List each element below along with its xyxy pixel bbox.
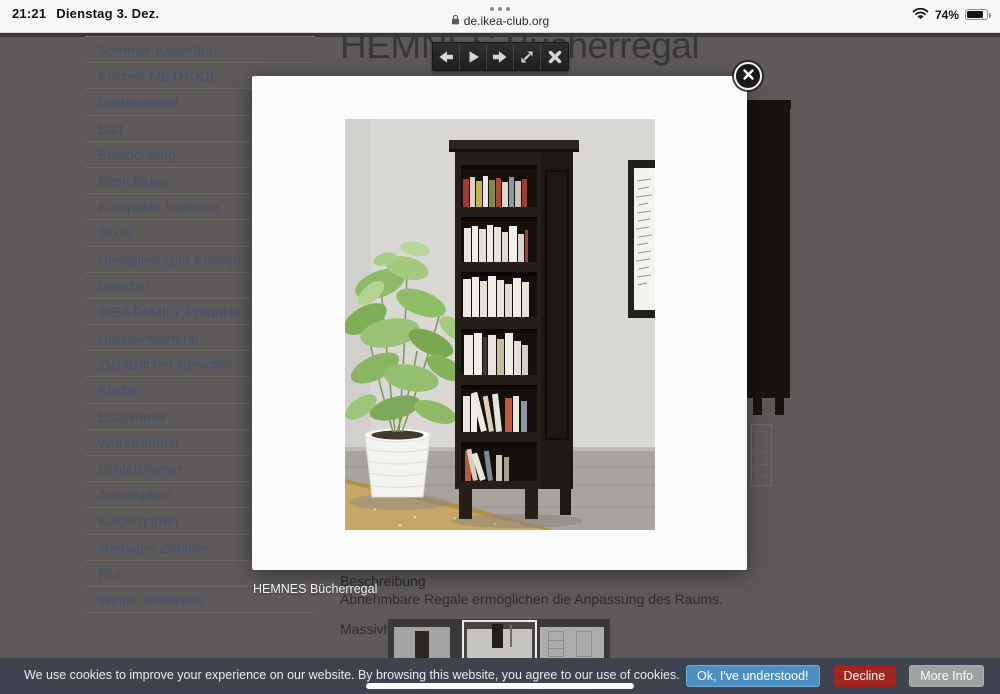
- close-x-icon: [742, 68, 755, 84]
- close-icon: [545, 47, 565, 67]
- cookie-more-info-button[interactable]: More Info: [909, 665, 984, 687]
- thumbnail-strip: [388, 619, 610, 661]
- background-product-leg: [753, 398, 762, 415]
- lock-icon: [451, 14, 460, 28]
- home-indicator[interactable]: [366, 683, 634, 689]
- wifi-icon: [912, 7, 929, 22]
- expand-icon: [517, 47, 537, 67]
- thumbnail-3[interactable]: [540, 627, 604, 661]
- product-photo-hemnes-bookshelf: [345, 119, 655, 530]
- thumbnail-2-selected[interactable]: [462, 620, 537, 661]
- next-arrow-icon: [490, 47, 510, 67]
- previous-arrow-icon: [436, 47, 456, 67]
- next-image-button[interactable]: [487, 43, 514, 70]
- tab-dots-icon[interactable]: [0, 7, 1000, 11]
- previous-image-button[interactable]: [433, 43, 460, 70]
- url-text: de.ikea-club.org: [464, 14, 549, 28]
- lightbox-caption: HEMNES Bücherregal: [253, 582, 377, 596]
- status-bar: 21:21Dienstag 3. Dez. de.ikea-club.org 7: [0, 0, 1000, 33]
- play-slideshow-button[interactable]: [460, 43, 487, 70]
- lightbox-modal: [252, 76, 747, 570]
- description-text: Abnehmbare Regale ermöglichen die Anpass…: [340, 591, 723, 607]
- background-product-image-body: [745, 100, 790, 398]
- toolbar-close-button[interactable]: [541, 43, 568, 70]
- play-icon: [463, 47, 483, 67]
- cookie-decline-button[interactable]: Decline: [833, 665, 897, 687]
- cookie-message: We use cookies to improve your experienc…: [24, 668, 680, 682]
- sidebar-item-sommer-kollektion[interactable]: Sommer-Kollektion: [85, 37, 315, 63]
- ipad-safari-screen: Sommer-Kollektion Küchen METHODE Gartenm…: [0, 0, 1000, 694]
- background-mini-thumbnail: [751, 424, 772, 486]
- background-product-leg: [775, 398, 784, 415]
- expand-fullscreen-button[interactable]: [514, 43, 541, 70]
- lightbox-toolbar: [432, 42, 569, 71]
- cookie-accept-button[interactable]: Ok, I've understood!: [686, 665, 819, 687]
- address-bar[interactable]: de.ikea-club.org: [451, 14, 549, 28]
- lightbox-close-button[interactable]: [734, 62, 762, 90]
- thumbnail-1[interactable]: [394, 627, 450, 661]
- battery-percent-text: 74%: [935, 8, 959, 22]
- battery-icon: [965, 9, 988, 20]
